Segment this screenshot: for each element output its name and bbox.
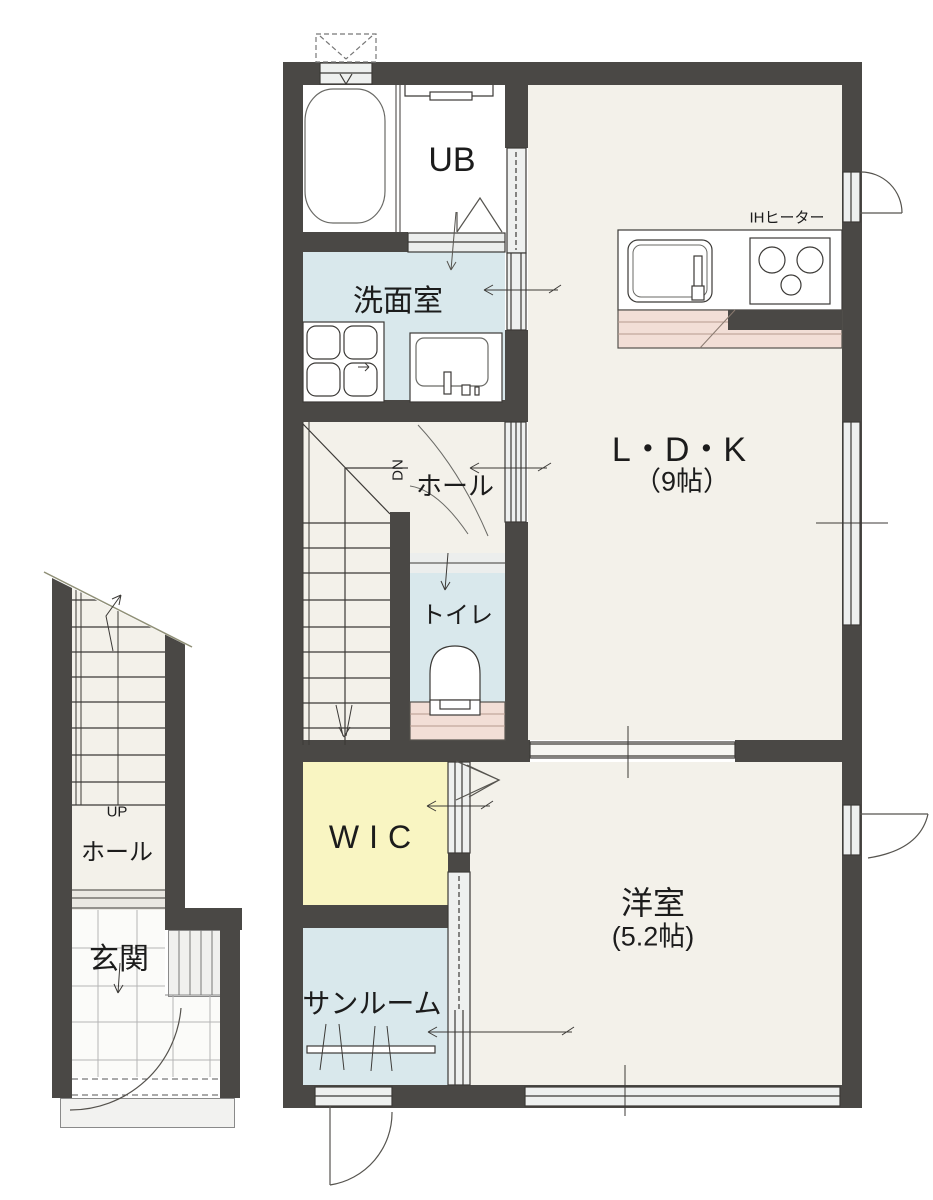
wall-divider-a: [505, 85, 528, 148]
label-stairs-down: DN: [391, 459, 406, 481]
label-wic: WIC: [329, 821, 421, 853]
wall-stairs-toilet: [390, 512, 410, 745]
room-stairs-entry: [72, 575, 165, 805]
label-ih-heater: IHヒーター: [749, 211, 824, 226]
label-ub: UB: [428, 143, 475, 177]
label-entry-hall: ホール: [81, 841, 153, 865]
label-genkan: 玄関: [89, 945, 149, 975]
floorplan: UB 洗面室 IHヒーター L・D・K （9帖） ホール DN トイレ WIC …: [0, 0, 933, 1200]
wall-entry-steps-right: [220, 908, 240, 1098]
wall-bottom: [283, 1085, 862, 1108]
label-toilet: トイレ: [421, 604, 493, 628]
room-toilet: [410, 573, 505, 702]
label-hall-main: ホール: [416, 473, 494, 499]
label-western: 洋室: [621, 887, 685, 919]
entry-steps: [168, 930, 222, 997]
wall-right: [842, 62, 862, 1108]
wall-ldk-western: [735, 740, 842, 762]
label-stairs-up: UP: [107, 805, 128, 820]
label-sunroom: サンルーム: [302, 990, 441, 1018]
wall-divider-b: [505, 330, 528, 422]
label-ldk: L・D・K: [612, 433, 746, 467]
room-senmenshitsu: [303, 252, 505, 400]
label-senmenshitsu: 洗面室: [353, 287, 443, 317]
label-western-size: (5.2帖): [612, 924, 695, 951]
room-ldk: [528, 85, 842, 740]
toilet-threshold: [410, 553, 505, 573]
wall-senmen-stairs: [303, 400, 528, 422]
wall-entrywing-right: [165, 627, 185, 908]
entry-threshold: [72, 890, 165, 910]
wall-top: [283, 62, 862, 85]
wall-left: [283, 62, 303, 1108]
wall-divider-c: [505, 522, 528, 745]
label-ldk-size: （9帖）: [634, 469, 730, 496]
room-genkan-lower: [165, 995, 220, 1077]
entry-porch: [60, 1098, 235, 1128]
room-stairs-main: [303, 422, 390, 745]
wall-mid-left: [283, 740, 530, 762]
wall-ub-senmen: [303, 232, 408, 252]
wall-wic-right-mid: [448, 853, 470, 872]
wall-entrywing-left: [52, 575, 72, 1098]
wall-wic-sunroom: [283, 905, 470, 928]
room-genkan: [72, 910, 165, 1077]
